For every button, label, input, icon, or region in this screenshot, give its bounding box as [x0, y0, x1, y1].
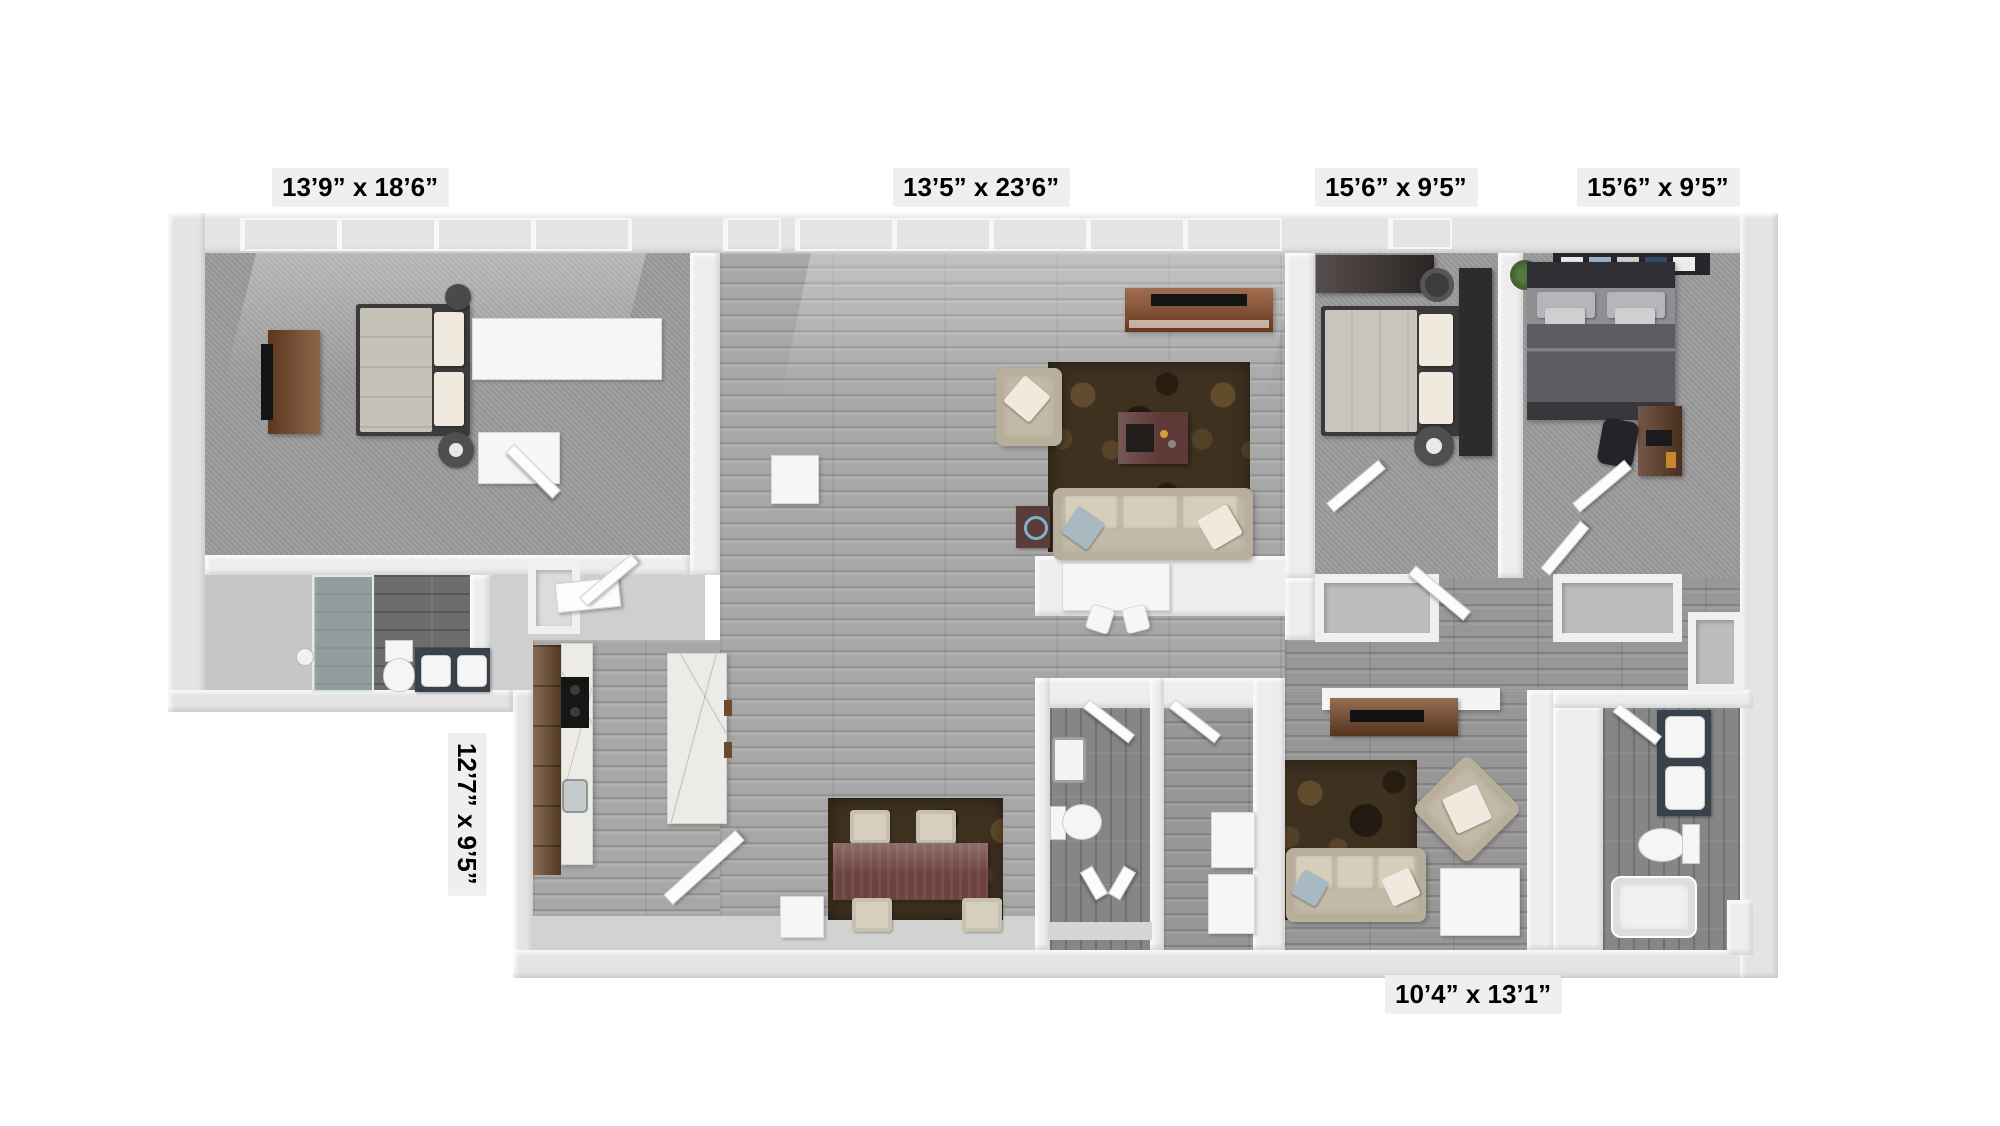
- sofa-cushion: [1123, 496, 1179, 530]
- living-tv-icon: [1151, 294, 1247, 306]
- sofa-cushion: [1337, 856, 1375, 890]
- wall-bedroom-divider: [1498, 253, 1523, 578]
- kitchen-sink-icon: [562, 779, 588, 813]
- bedroom-3-closet: [1553, 574, 1682, 642]
- bath2-vanity: [1657, 710, 1711, 816]
- master-bed-duvet: [360, 308, 432, 432]
- pillow: [434, 312, 464, 366]
- laundry-unit: [1208, 874, 1255, 934]
- console-shelf: [1129, 320, 1269, 328]
- entry-bench: [780, 896, 824, 938]
- island-stool: [724, 742, 732, 758]
- bedroom2-headboard: [1459, 268, 1492, 456]
- wall-bathblock-mid: [1150, 678, 1164, 950]
- floor-plan-image: 13’9” x 18’6” 13’5” x 23’6” 15’6” x 9’5”…: [0, 0, 2000, 1126]
- den-sofa: [1286, 848, 1426, 922]
- pillow: [1003, 375, 1051, 423]
- master-nightstand: [445, 284, 471, 310]
- bath1-sink-icon: [1052, 737, 1086, 783]
- wall-closet-band: [1285, 578, 1315, 640]
- dimension-label-living-room: 13’5” x 23’6”: [893, 168, 1069, 206]
- bedroom2-dresser: [1316, 255, 1434, 293]
- wall-bathblock-right: [1253, 678, 1285, 950]
- burner-dot: [570, 685, 580, 695]
- den-tv-icon: [1350, 710, 1424, 722]
- kitchen-island: [667, 653, 727, 824]
- bed-duvet: [1527, 324, 1675, 402]
- dining-table: [833, 843, 988, 900]
- coffee-table: [1118, 412, 1188, 464]
- master-tv-console: [268, 330, 320, 434]
- poster-icon: [1666, 452, 1676, 468]
- shower-head-icon: [296, 648, 314, 666]
- wall-bathblock-left: [1035, 678, 1050, 950]
- dining-chair: [852, 898, 892, 932]
- hall-linen-closet: [1688, 612, 1742, 692]
- master-vanity: [415, 648, 490, 692]
- dimension-label-kitchen: 12’7” x 9’5”: [448, 733, 486, 895]
- island-stool: [724, 700, 732, 716]
- bathtub-icon: [1611, 876, 1697, 938]
- bedroom2-lamp-icon: [1420, 268, 1454, 302]
- wall-bedroom2-left: [1285, 253, 1315, 578]
- bed-duvet: [1325, 310, 1417, 432]
- dimension-label-bedroom-right: 15’6” x 9’5”: [1577, 168, 1739, 206]
- hall-desk: [1062, 563, 1170, 611]
- pillow: [1419, 372, 1453, 424]
- sink-icon: [421, 655, 451, 687]
- decor-ring-icon: [1024, 516, 1048, 540]
- exterior-wall-left: [168, 213, 205, 712]
- shower-glass: [312, 575, 374, 693]
- decor-dot: [1168, 440, 1176, 448]
- dining-chair: [962, 898, 1002, 932]
- flowers-icon: [1426, 438, 1442, 454]
- master-toilet-bowl: [383, 658, 415, 692]
- dining-chair: [916, 810, 956, 844]
- wall-bath2-step: [1727, 900, 1753, 955]
- exterior-wall-right: [1740, 213, 1778, 978]
- bedroom3-desk: [1638, 406, 1682, 476]
- sink-icon: [1665, 716, 1705, 758]
- kitchen-cabinets: [533, 645, 561, 875]
- dining-chair: [850, 810, 890, 844]
- bedroom3-bed-icon: [1527, 262, 1675, 420]
- bedroom2-side-table: [1414, 426, 1454, 466]
- bath1-ledge: [1048, 922, 1152, 940]
- living-armchair: [996, 368, 1062, 446]
- bath1-toilet-bowl: [1062, 804, 1102, 840]
- master-tv-icon: [261, 344, 273, 420]
- pillow: [434, 372, 464, 426]
- exterior-wall-kitchen-left: [513, 690, 533, 978]
- master-bedroom-window: [240, 218, 632, 251]
- master-bed-icon: [356, 304, 470, 436]
- bedroom-2-window: [1388, 218, 1452, 249]
- exterior-wall-bottom: [513, 950, 1778, 978]
- sofa-side-table: [1016, 506, 1050, 548]
- cooktop-icon: [561, 677, 589, 728]
- master-bath-closet-floor: [205, 575, 315, 693]
- living-sofa: [1053, 488, 1253, 560]
- master-side-table: [438, 432, 474, 468]
- bath2-toilet-bowl: [1638, 828, 1686, 862]
- decor-dot: [1160, 430, 1168, 438]
- bath2-toilet-tank: [1682, 824, 1700, 864]
- balcony-door-window: [723, 218, 781, 251]
- pillow: [1419, 314, 1453, 366]
- tray-icon: [1126, 424, 1154, 452]
- master-built-in-shelf: [472, 318, 662, 380]
- laundry-unit: [1211, 812, 1255, 868]
- sink-icon: [457, 655, 487, 687]
- living-tv-console: [1125, 288, 1273, 332]
- pillow: [1442, 784, 1492, 834]
- wall-bath2-left: [1553, 706, 1603, 950]
- floor-cube: [771, 455, 819, 504]
- wall-living-left: [690, 253, 720, 575]
- books-icon: [1673, 257, 1695, 271]
- den-credenza: [1440, 868, 1520, 936]
- wall-bath2-top: [1553, 690, 1753, 708]
- bed-headboard: [1527, 262, 1675, 288]
- laptop-icon: [1646, 430, 1672, 446]
- flowers-icon: [449, 443, 463, 457]
- bedroom2-bed-icon: [1321, 306, 1461, 436]
- living-room-window: [795, 218, 1282, 251]
- sink-icon: [1665, 766, 1705, 810]
- wall-den-right: [1527, 690, 1555, 950]
- burner-dot: [570, 707, 580, 717]
- dimension-label-den: 10’4” x 13’1”: [1385, 975, 1561, 1013]
- dimension-label-bedroom-middle: 15’6” x 9’5”: [1315, 168, 1477, 206]
- dimension-label-master-bedroom: 13’9” x 18’6”: [272, 168, 448, 206]
- exterior-wall-wing-bottom: [168, 690, 513, 712]
